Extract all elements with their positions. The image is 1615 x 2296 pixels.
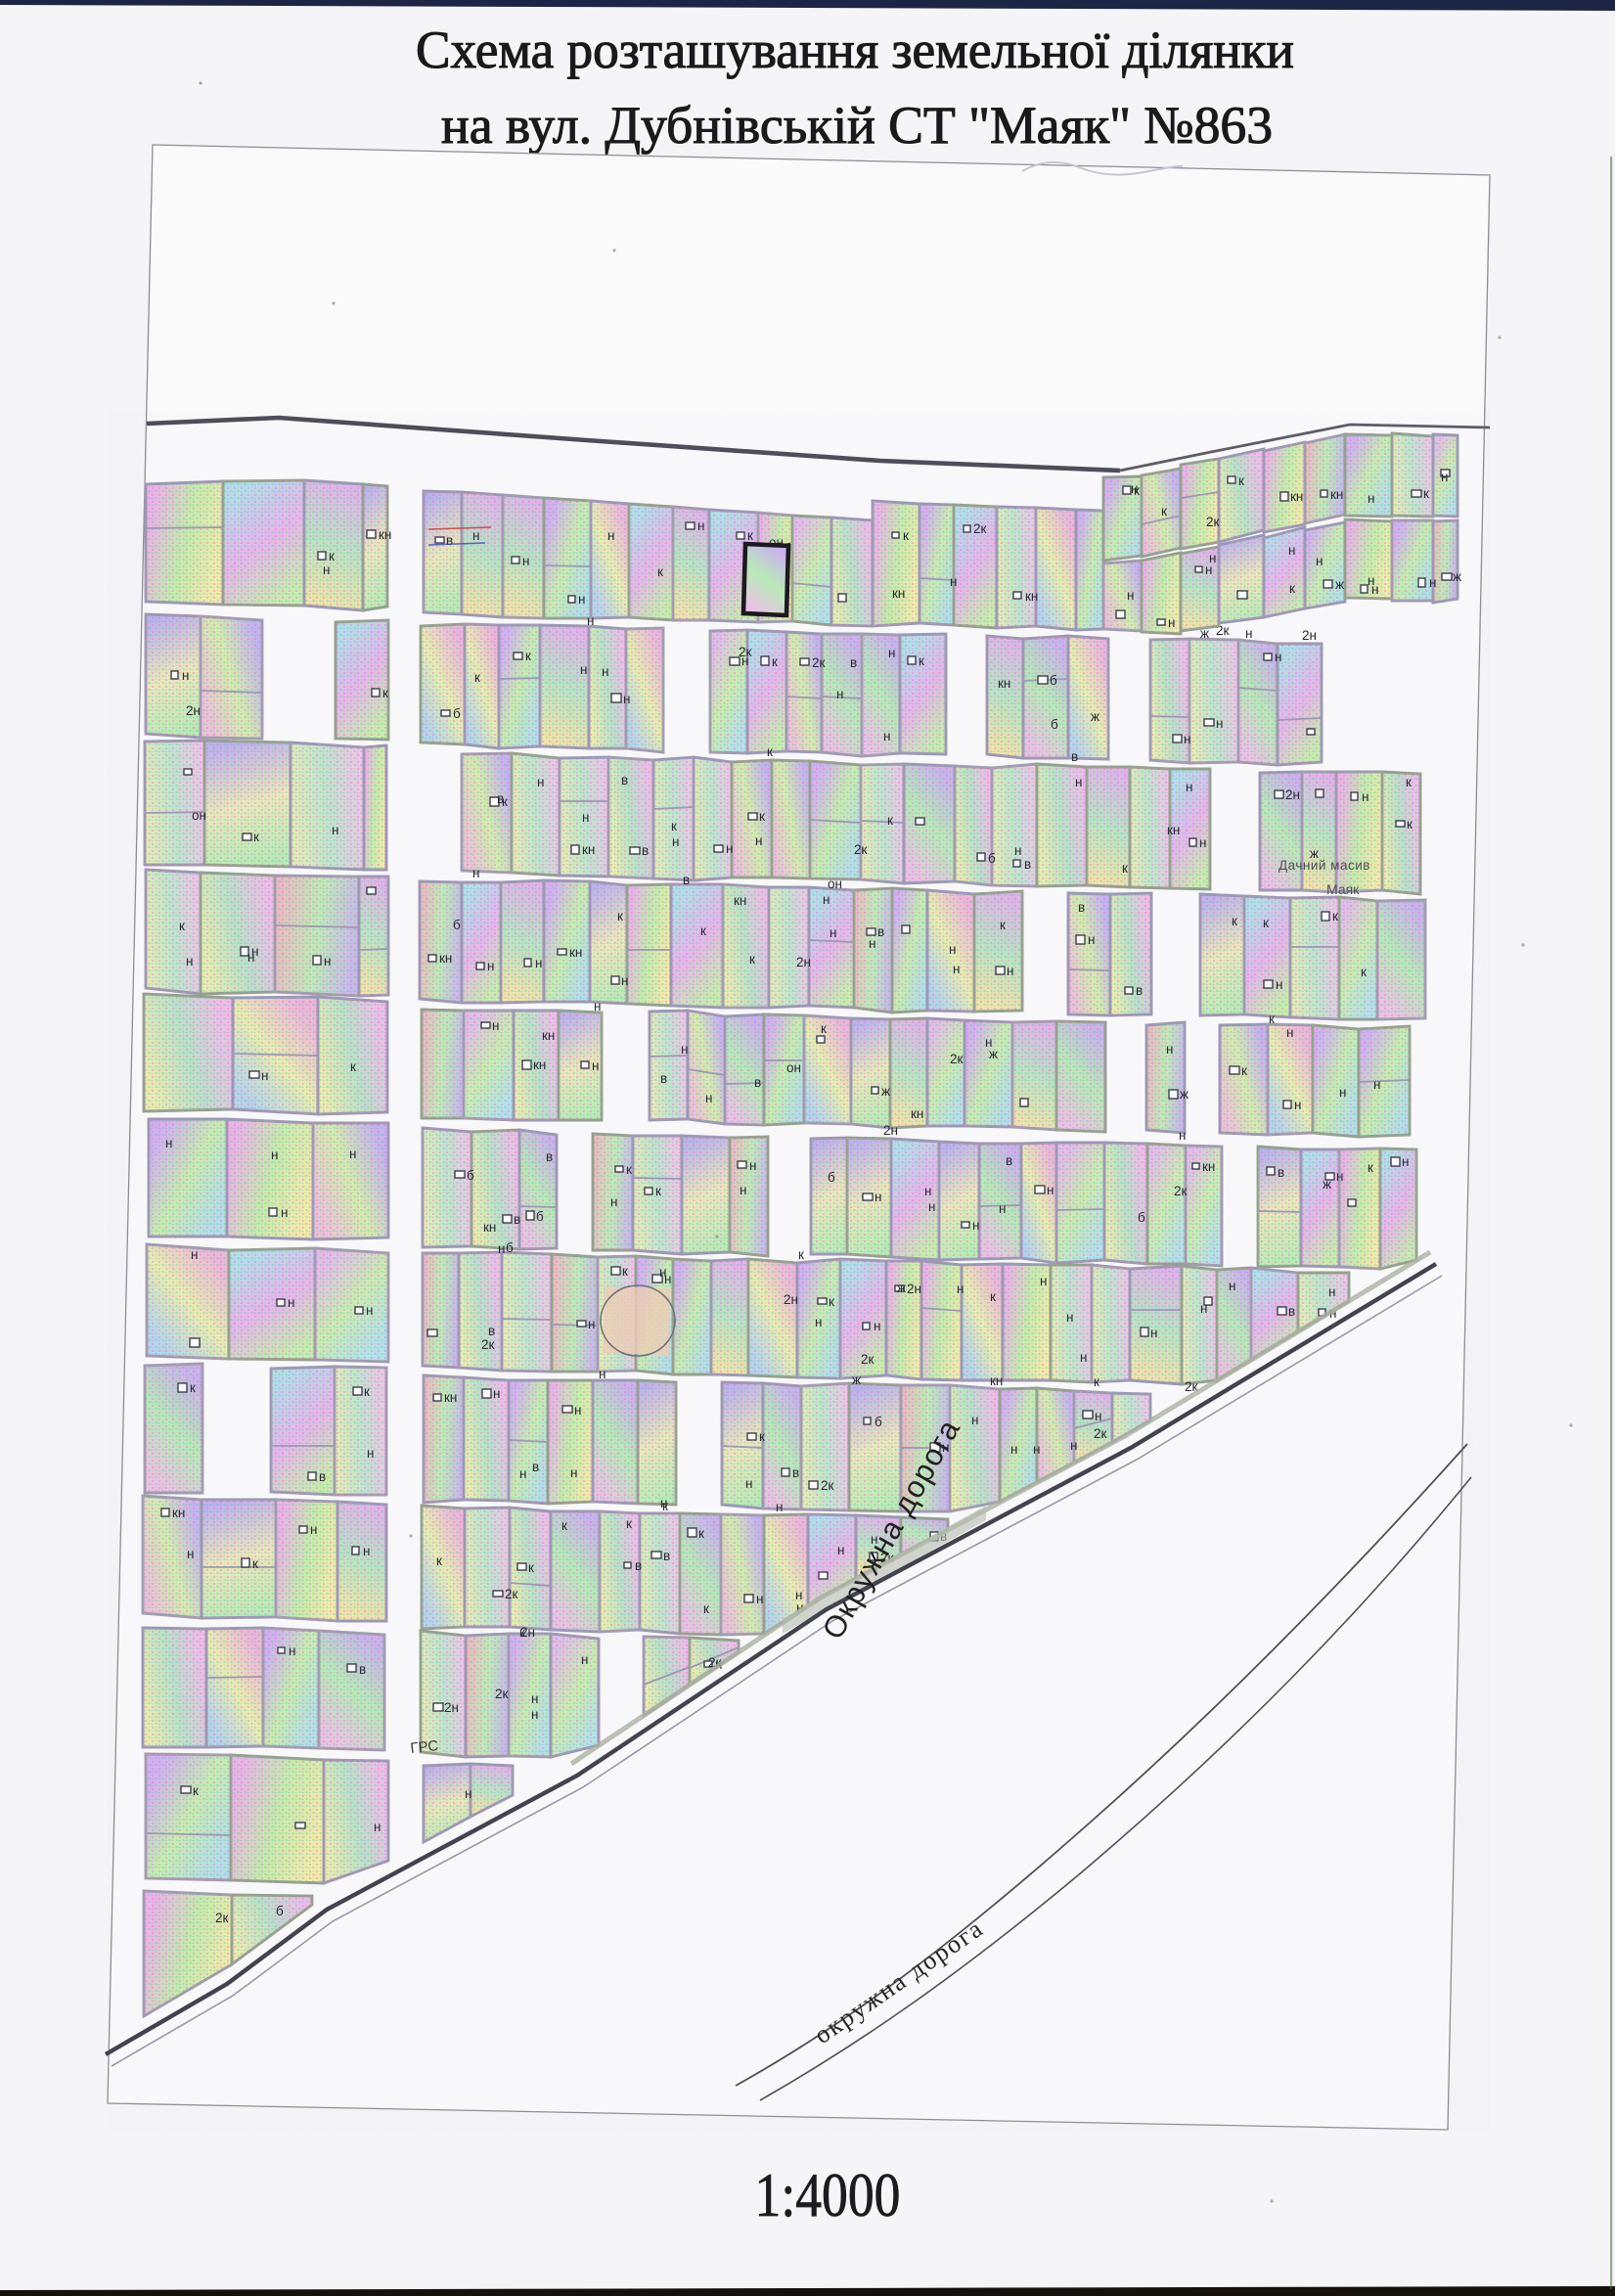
svg-text:на вул. Дубнівській СТ "Маяк": на вул. Дубнівській СТ "Маяк" №863 <box>441 96 1273 155</box>
svg-text:1:4000: 1:4000 <box>755 2160 901 2229</box>
svg-text:Схема розташування земельної д: Схема розташування земельної ділянки <box>416 21 1294 79</box>
